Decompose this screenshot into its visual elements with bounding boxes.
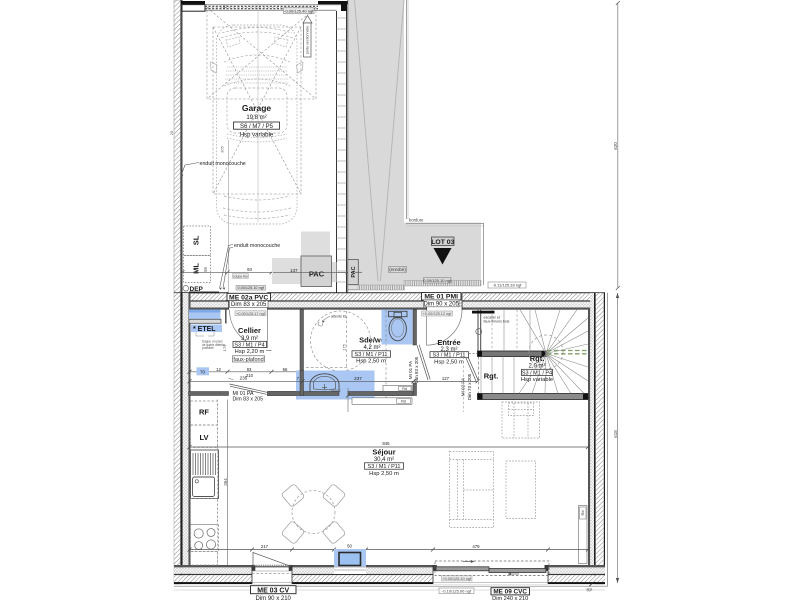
svg-text:Rgt.: Rgt.: [530, 354, 545, 363]
svg-text:MI 02 PA: MI 02 PA: [460, 378, 465, 396]
svg-text:PAC: PAC: [309, 270, 325, 279]
svg-text:98: 98: [203, 267, 208, 272]
svg-text:S3 / M1 / P11: S3 / M1 / P11: [355, 352, 388, 358]
svg-text:Dim 240 x 210: Dim 240 x 210: [492, 596, 528, 600]
svg-text:-0.00/125.40 ngf: -0.00/125.40 ngf: [284, 8, 314, 13]
svg-text:+0.00/125.12 ngf: +0.00/125.12 ngf: [423, 312, 453, 316]
svg-text:Hsp 2,50 m: Hsp 2,50 m: [434, 359, 464, 365]
svg-text:ME 03 CV: ME 03 CV: [257, 587, 289, 594]
svg-text:MI 01 PA: MI 01 PA: [408, 361, 413, 379]
svg-text:127: 127: [442, 376, 450, 381]
svg-text:Rd: Rd: [401, 400, 406, 404]
svg-text:S3 / M1 / P11: S3 / M1 / P11: [368, 464, 401, 470]
svg-text:Dim 90 x 205: Dim 90 x 205: [424, 302, 460, 308]
svg-text:618: 618: [613, 430, 618, 438]
svg-text:12: 12: [216, 367, 221, 372]
svg-text:Rd: Rd: [402, 387, 407, 391]
svg-text:enduit monocouche: enduit monocouche: [200, 161, 246, 167]
svg-text:faux-plafond: faux-plafond: [233, 357, 263, 363]
svg-text:235: 235: [240, 376, 248, 381]
svg-text:SL: SL: [191, 235, 200, 245]
svg-text:ME 02a PVC: ME 02a PVC: [229, 294, 268, 301]
svg-text:82: 82: [223, 4, 228, 9]
svg-text:0.00/125.10 ngf: 0.00/125.10 ngf: [423, 278, 452, 283]
svg-text:Rgt.: Rgt.: [484, 372, 499, 381]
svg-text:(enrobé): (enrobé): [389, 267, 406, 272]
svg-text:enduit monocouche: enduit monocouche: [234, 243, 280, 249]
svg-text:ME 09 CVC: ME 09 CVC: [493, 589, 527, 596]
svg-text:620: 620: [613, 142, 618, 150]
svg-text:Hsp 2,20 m: Hsp 2,20 m: [235, 349, 265, 355]
svg-text:Rd: Rd: [581, 511, 585, 516]
svg-text:Dim 73 x 205: Dim 73 x 205: [467, 373, 472, 400]
svg-text:20: 20: [169, 130, 174, 135]
svg-text:Dim 90 x 210: Dim 90 x 210: [256, 596, 292, 600]
svg-text:bordure: bordure: [409, 218, 424, 223]
svg-text:LOT 03: LOT 03: [431, 239, 454, 246]
svg-text:attente EL: attente EL: [331, 315, 347, 319]
svg-text:845: 845: [382, 441, 390, 446]
svg-text:93: 93: [247, 367, 252, 372]
svg-text:364: 364: [223, 478, 228, 486]
svg-text:93: 93: [247, 267, 252, 272]
svg-text:Séjour: Séjour: [372, 448, 395, 457]
svg-text:-0.11/125.33 ngf: -0.11/125.33 ngf: [493, 283, 523, 288]
svg-text:porte sectionnelle: porte sectionnelle: [305, 26, 309, 54]
svg-text:faux-limons bois: faux-limons bois: [484, 320, 510, 324]
svg-text:50: 50: [347, 544, 352, 549]
svg-text:70: 70: [200, 370, 206, 375]
svg-text:237: 237: [354, 376, 362, 381]
svg-text:217: 217: [261, 544, 269, 549]
svg-text:3,9 m²: 3,9 m²: [241, 336, 258, 342]
svg-text:0.00/125.10 ngf: 0.00/125.10 ngf: [237, 286, 264, 290]
svg-text:Hsp 2,50 m: Hsp 2,50 m: [369, 471, 399, 477]
svg-text:LV: LV: [199, 433, 208, 442]
svg-text:175: 175: [342, 343, 347, 350]
svg-text:66: 66: [283, 367, 288, 372]
svg-text:Dim 83 x 205: Dim 83 x 205: [233, 397, 264, 403]
svg-text:19,8 m²: 19,8 m²: [246, 115, 266, 121]
svg-text:30,4 m²: 30,4 m²: [374, 457, 394, 463]
svg-text:Hsp 2,50 m: Hsp 2,50 m: [356, 359, 386, 365]
svg-text:Dim 83 x 205: Dim 83 x 205: [231, 302, 267, 308]
svg-text:S3 / M1 / P4: S3 / M1 / P4: [234, 342, 264, 348]
svg-text:+0.00/125.17 ngf: +0.00/125.17 ngf: [236, 312, 266, 316]
svg-text:+0.00/125.10 ngf: +0.00/125.10 ngf: [442, 577, 472, 581]
svg-text:Hsp variable: Hsp variable: [240, 133, 274, 139]
svg-text:Dim 83 x 205: Dim 83 x 205: [414, 356, 419, 383]
svg-text:Hsp variable: Hsp variable: [521, 377, 553, 383]
svg-text:Entrée: Entrée: [437, 338, 460, 347]
svg-text:RP: RP: [587, 588, 593, 593]
svg-text:Cellier: Cellier: [238, 326, 261, 335]
svg-text:RF: RF: [199, 408, 209, 417]
svg-text:S3 / M1 / P11: S3 / M1 / P11: [433, 353, 466, 359]
svg-text:* ETEL: * ETEL: [193, 326, 216, 333]
svg-text:479: 479: [472, 544, 480, 549]
svg-text:175: 175: [222, 344, 227, 351]
svg-text:S3 / M1 / P4: S3 / M1 / P4: [522, 370, 552, 376]
svg-text:S6 / M7 / P5: S6 / M7 / P5: [240, 124, 274, 130]
svg-text:possible: possible: [202, 346, 214, 350]
svg-text:2,0 m²: 2,0 m²: [528, 364, 545, 370]
svg-text:Garage: Garage: [242, 103, 272, 113]
svg-text:ME 01 PMI: ME 01 PMI: [424, 294, 458, 301]
svg-text:-0.10/125.00 ngf: -0.10/125.00 ngf: [442, 588, 472, 593]
svg-text:365: 365: [220, 145, 225, 152]
svg-text:coupe-feu: coupe-feu: [233, 274, 248, 278]
svg-text:4,2 m²: 4,2 m²: [363, 345, 380, 351]
svg-text:Sde/wc: Sde/wc: [359, 336, 385, 345]
